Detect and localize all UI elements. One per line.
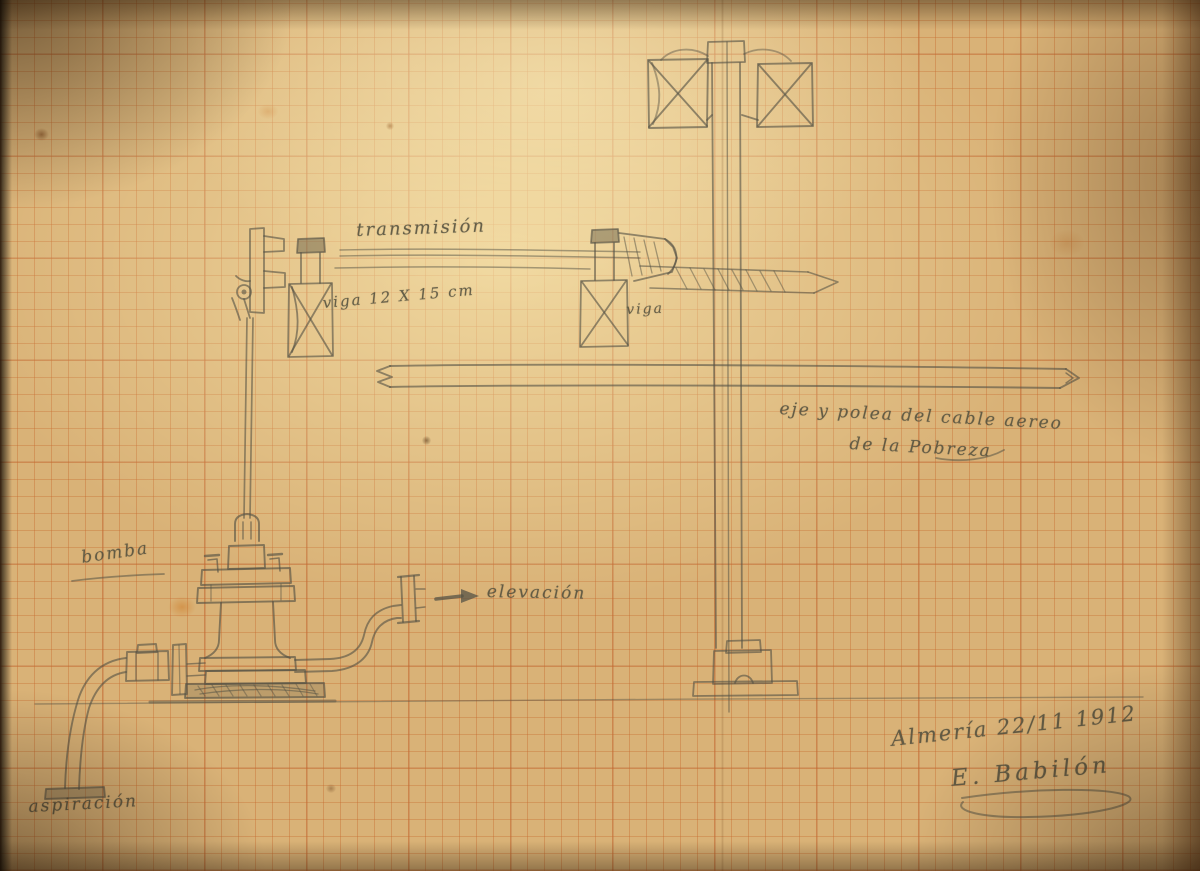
crank-bracket (232, 228, 285, 320)
pole-base (693, 640, 798, 696)
discharge-label: elevación (487, 582, 587, 604)
beam-label: viga (626, 301, 664, 318)
pole-pulley-left (648, 59, 712, 128)
pump-rod (244, 318, 253, 518)
signature-flourish (961, 790, 1130, 817)
suction-pipe (45, 644, 205, 799)
pole (661, 41, 791, 712)
elevation-arrow (436, 589, 479, 603)
photograph-frame: transmisión viga 12 X 15 cm viga eje y p… (0, 0, 1200, 871)
pump-body (185, 514, 325, 698)
pole-pulley-right (742, 63, 813, 127)
pencil-drawing (0, 0, 1200, 871)
discharge-pipe (295, 575, 425, 672)
jib-beam (640, 266, 838, 293)
pump-label-underline (72, 574, 164, 581)
